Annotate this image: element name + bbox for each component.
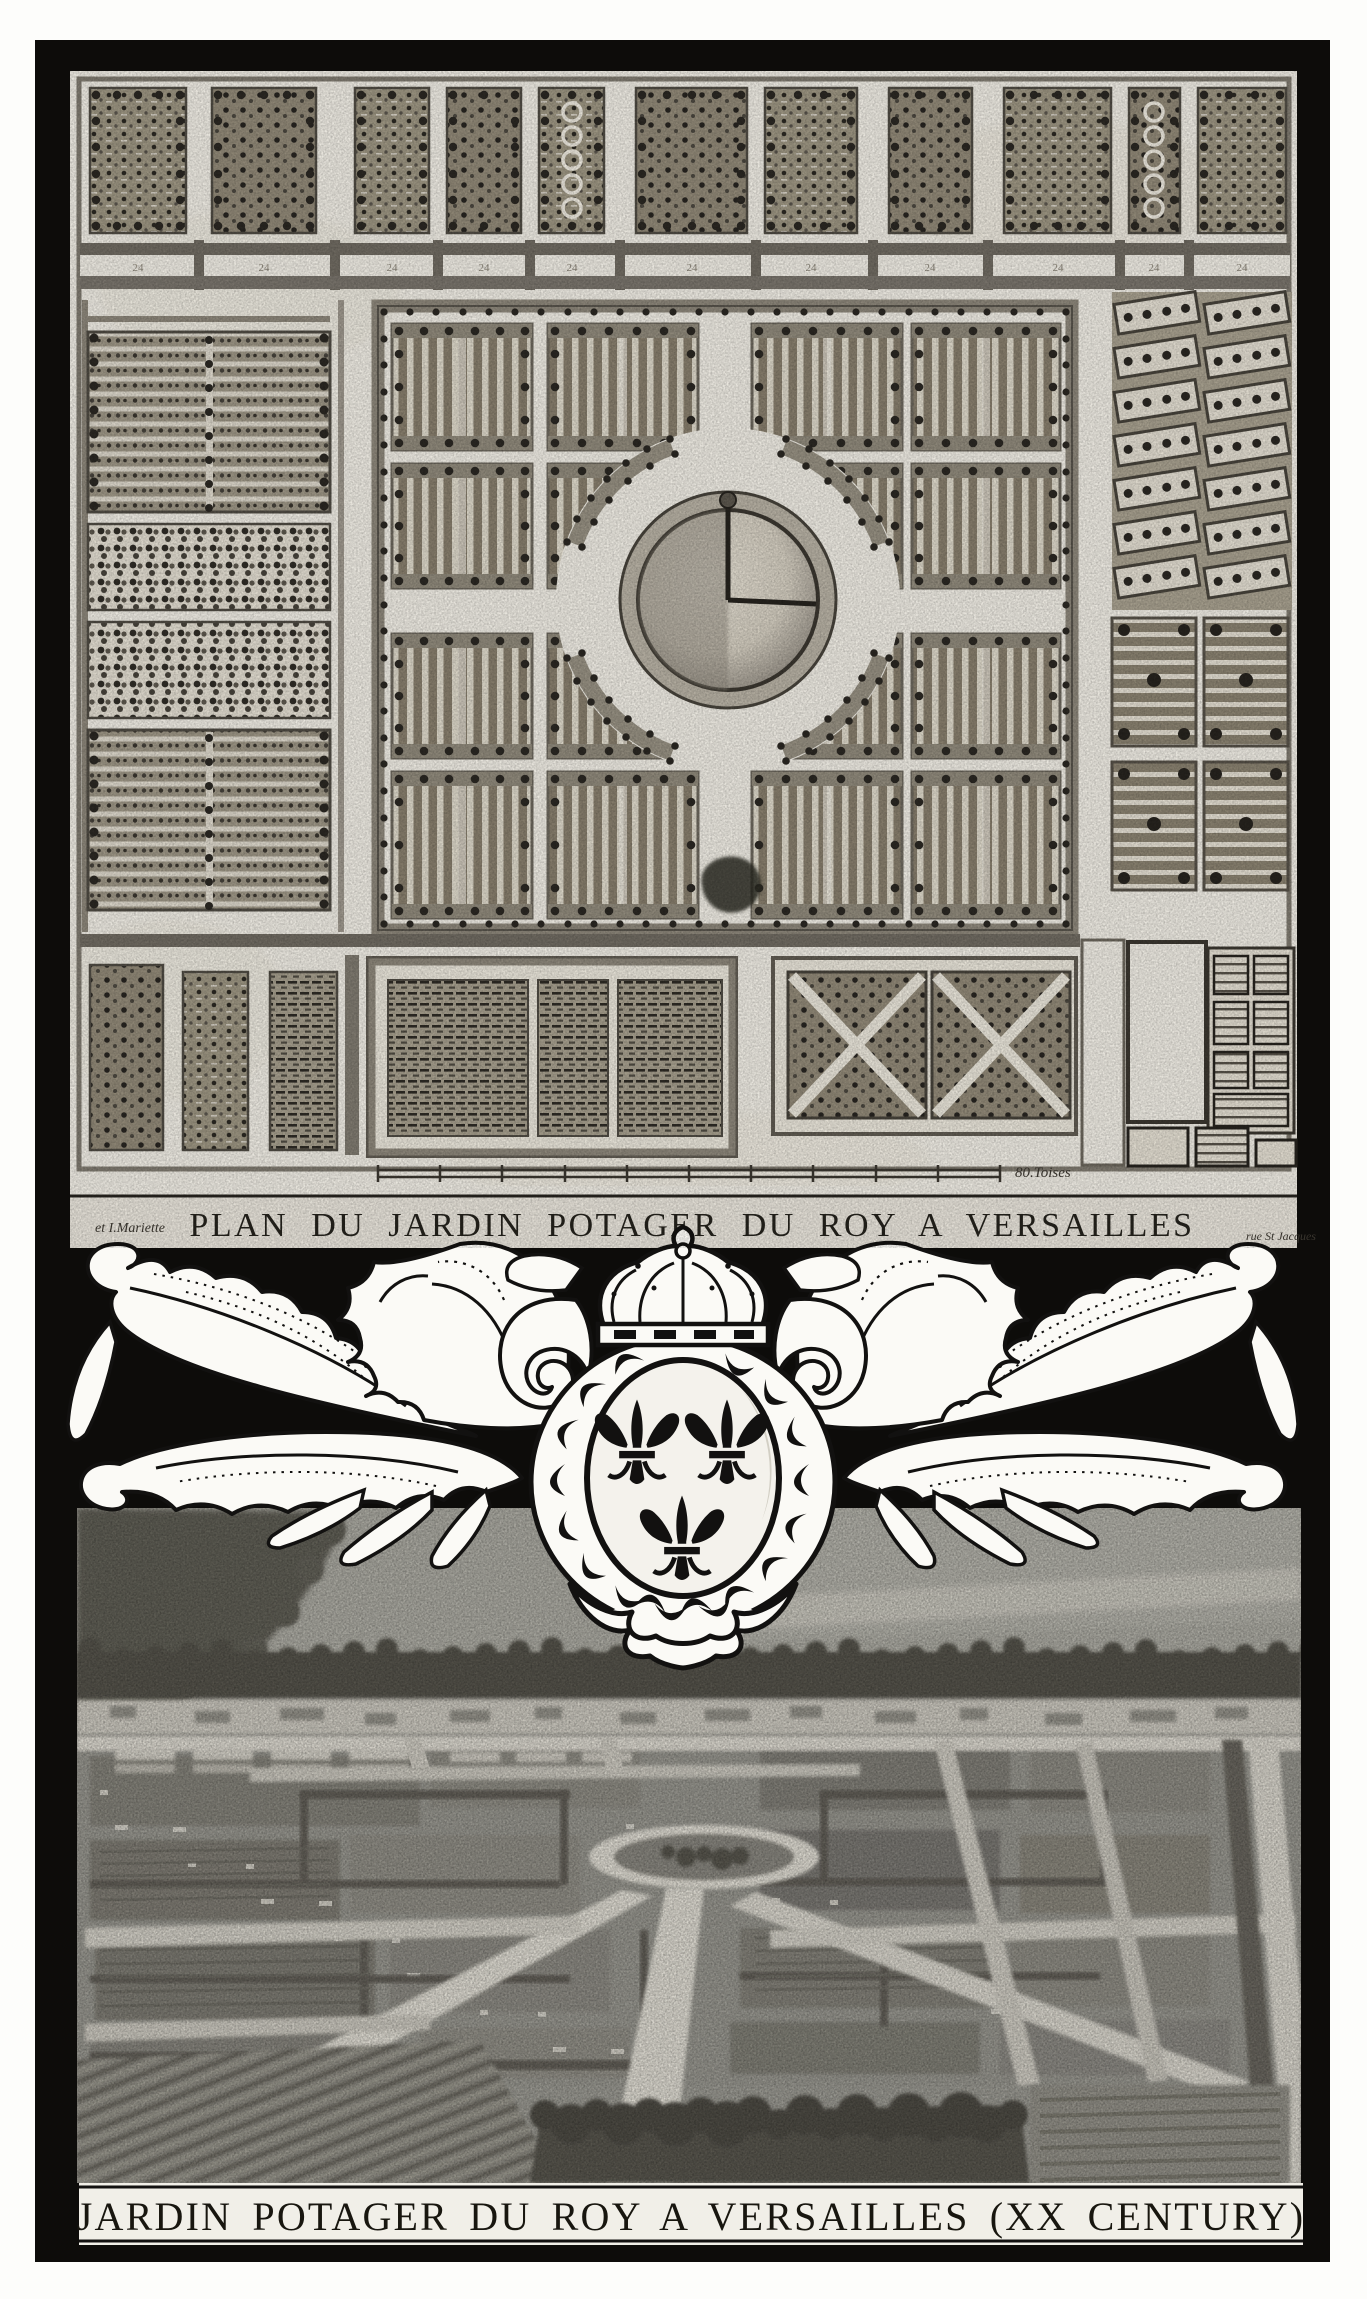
svg-text:JARDIN POTAGER DU ROY A VERSAI: JARDIN POTAGER DU ROY A VERSAILLES (XX C… (77, 2194, 1305, 2239)
